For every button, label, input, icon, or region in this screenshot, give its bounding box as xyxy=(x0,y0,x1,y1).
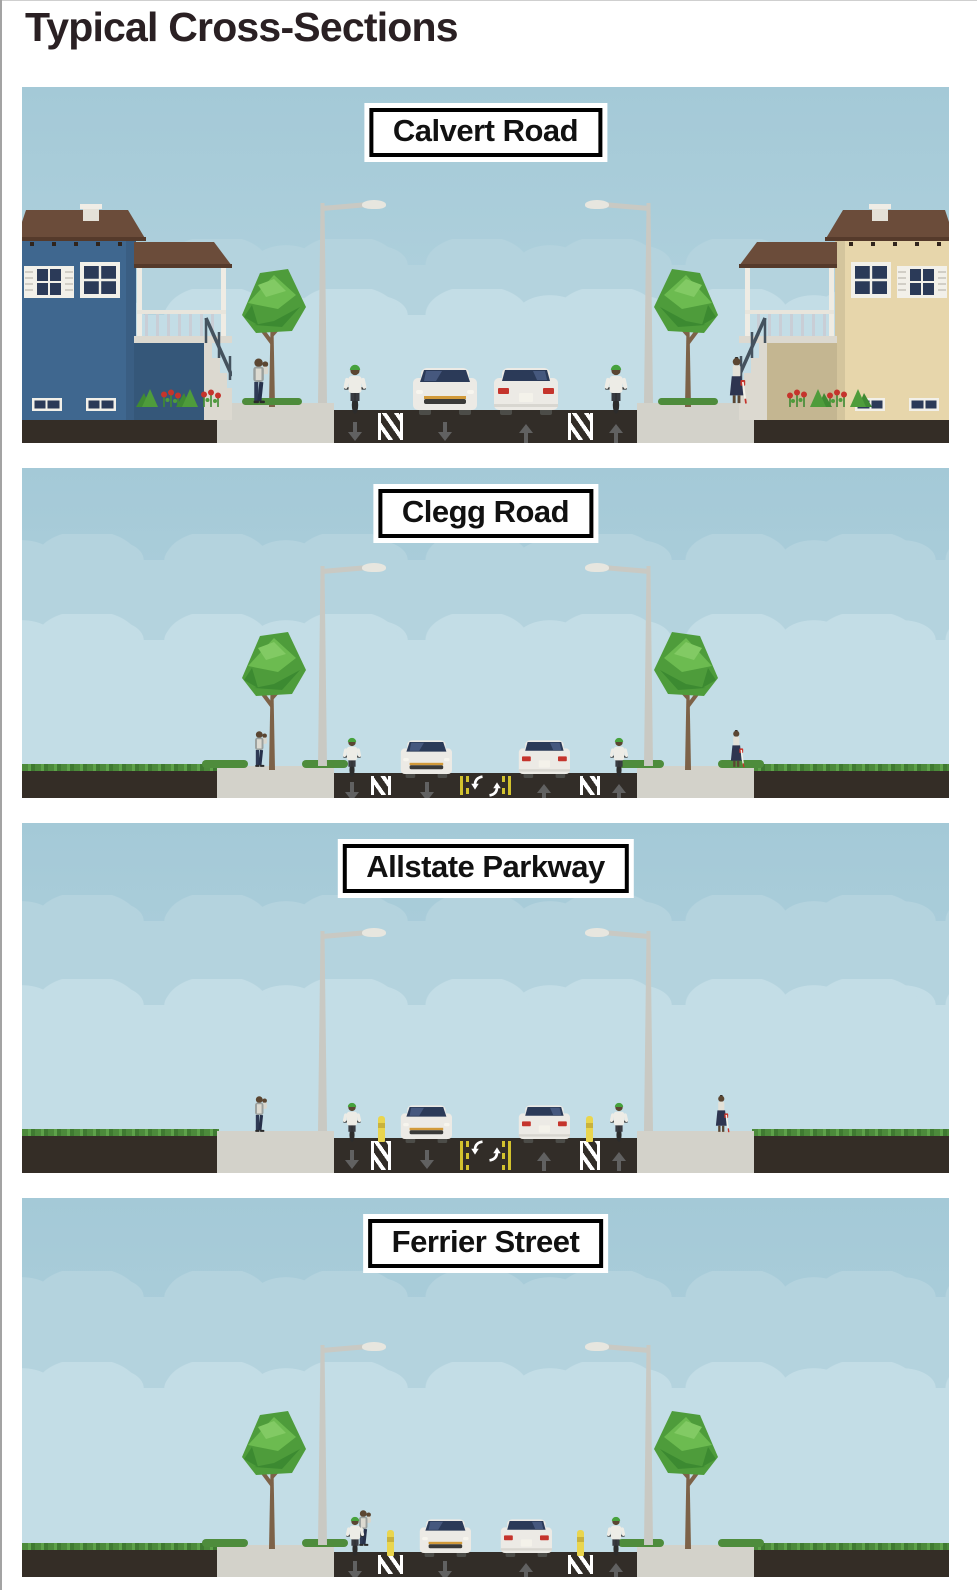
cyclist xyxy=(607,734,631,777)
sidewalk xyxy=(637,766,754,798)
street-tree xyxy=(646,628,730,770)
bike-lane-arrow-down xyxy=(348,1561,362,1577)
sidewalk xyxy=(217,1545,334,1577)
lamp-head xyxy=(585,200,609,209)
car-front-view xyxy=(412,360,478,416)
lamp-pole xyxy=(644,931,653,1131)
bike-lane-arrow-up xyxy=(612,1150,626,1171)
travel-lane-arrow-up xyxy=(537,782,551,798)
flex-post xyxy=(387,1530,394,1556)
sidewalk xyxy=(637,1131,754,1173)
lamp-pole xyxy=(318,203,327,403)
turn-arrow xyxy=(487,1147,502,1162)
hedge xyxy=(202,1539,248,1547)
bike-lane-arrow-up xyxy=(609,422,623,443)
pedestrian xyxy=(725,357,752,405)
lamp-pole xyxy=(644,566,653,766)
cyclist xyxy=(340,360,370,414)
lamp-head xyxy=(585,1342,609,1351)
car-rear-view xyxy=(518,734,571,779)
buffer-hatch xyxy=(378,1555,402,1574)
panel-ferrier-street: Ferrier Street xyxy=(22,1198,949,1577)
panel-label: Calvert Road xyxy=(364,103,607,162)
panel-label: Allstate Parkway xyxy=(337,839,633,898)
lamp-head xyxy=(362,928,386,937)
lamp-pole xyxy=(318,931,327,1131)
travel-lane-arrow-down xyxy=(420,782,434,798)
lamp-head xyxy=(362,563,386,572)
lamp-pole xyxy=(644,203,653,403)
flower-bed xyxy=(824,387,874,407)
pedestrian xyxy=(247,357,274,405)
cyclist xyxy=(340,734,364,777)
cyclist xyxy=(604,1513,628,1556)
lamp-pole xyxy=(318,1345,327,1545)
sidewalk xyxy=(637,403,754,443)
panel-label-text: Ferrier Street xyxy=(368,1219,604,1268)
panel-label: Clegg Road xyxy=(373,484,598,543)
travel-lane-arrow-down xyxy=(438,1561,452,1577)
pedestrian xyxy=(727,730,749,768)
grass-boulevard xyxy=(752,764,949,798)
lamp-pole xyxy=(644,1345,653,1545)
center-line-yellow-dashed xyxy=(502,776,505,795)
panel-clegg-road: Clegg Road xyxy=(22,468,949,798)
buffer-hatch xyxy=(580,1141,600,1170)
flex-post xyxy=(378,1116,385,1142)
page-title: Typical Cross-Sections xyxy=(25,4,458,51)
car-front-view xyxy=(419,1513,472,1558)
car-rear-view xyxy=(500,1513,553,1558)
turn-arrow xyxy=(470,775,485,790)
center-line-yellow xyxy=(508,776,511,795)
turn-arrow xyxy=(470,1140,485,1155)
lamp-pole xyxy=(318,566,327,766)
buffer-hatch xyxy=(371,1141,391,1170)
car-rear-view xyxy=(518,1099,571,1144)
pedestrian xyxy=(250,730,272,768)
buffer-hatch xyxy=(378,413,402,440)
car-front-view xyxy=(400,1099,453,1144)
bike-lane-arrow-down xyxy=(348,422,362,443)
buffer-hatch xyxy=(568,1555,592,1574)
hedge xyxy=(718,1539,764,1547)
travel-lane-arrow-up xyxy=(519,422,533,443)
flex-post xyxy=(577,1530,584,1556)
bike-lane-arrow-up xyxy=(609,1561,623,1577)
lamp-head xyxy=(362,200,386,209)
pedestrian xyxy=(712,1095,734,1133)
panel-calvert-road: Calvert Road xyxy=(22,87,949,443)
turn-arrow xyxy=(487,782,502,797)
center-line-yellow xyxy=(460,776,463,795)
lamp-head xyxy=(585,928,609,937)
car-front-view xyxy=(400,734,453,779)
grass-boulevard xyxy=(752,1129,949,1173)
travel-lane-arrow-up xyxy=(537,1150,551,1171)
sidewalk xyxy=(217,766,334,798)
travel-lane-arrow-down xyxy=(438,422,452,443)
car-rear-view xyxy=(493,360,559,416)
panel-label-text: Calvert Road xyxy=(369,108,602,157)
grass-boulevard xyxy=(22,764,219,798)
street-tree xyxy=(230,628,314,770)
page: { "page": { "title": "Typical Cross-Sect… xyxy=(0,0,977,1590)
tree-planter-grass xyxy=(658,398,718,405)
grass-boulevard xyxy=(22,1129,219,1173)
hedge xyxy=(202,760,248,768)
panel-label-text: Clegg Road xyxy=(378,489,593,538)
bike-lane-arrow-down xyxy=(345,1150,359,1171)
cyclist xyxy=(340,1099,364,1142)
cyclist xyxy=(607,1099,631,1142)
bike-lane-arrow-down xyxy=(345,782,359,798)
cyclist xyxy=(343,1513,367,1556)
center-line-yellow xyxy=(460,1141,463,1170)
panel-label-text: Allstate Parkway xyxy=(342,844,628,893)
buffer-hatch xyxy=(580,776,600,795)
street-tree xyxy=(646,265,730,407)
street-tree xyxy=(646,1407,730,1549)
buffer-hatch xyxy=(371,776,391,795)
sidewalk xyxy=(217,403,334,443)
sidewalk xyxy=(217,1131,334,1173)
travel-lane-arrow-down xyxy=(420,1150,434,1171)
panel-label: Ferrier Street xyxy=(363,1214,609,1273)
lamp-head xyxy=(362,1342,386,1351)
lamp-head xyxy=(585,563,609,572)
center-line-yellow-dashed xyxy=(502,1141,505,1170)
pedestrian xyxy=(250,1095,272,1133)
flower-bed xyxy=(174,387,224,407)
street-tree xyxy=(230,1407,314,1549)
bike-lane-arrow-up xyxy=(612,782,626,798)
grass-boulevard xyxy=(22,1543,219,1577)
center-line-yellow xyxy=(508,1141,511,1170)
buffer-hatch xyxy=(568,413,592,440)
travel-lane-arrow-up xyxy=(519,1561,533,1577)
grass-boulevard xyxy=(752,1543,949,1577)
panel-allstate-parkway: Allstate Parkway xyxy=(22,823,949,1173)
sidewalk xyxy=(637,1545,754,1577)
flex-post xyxy=(586,1116,593,1142)
cyclist xyxy=(601,360,631,414)
